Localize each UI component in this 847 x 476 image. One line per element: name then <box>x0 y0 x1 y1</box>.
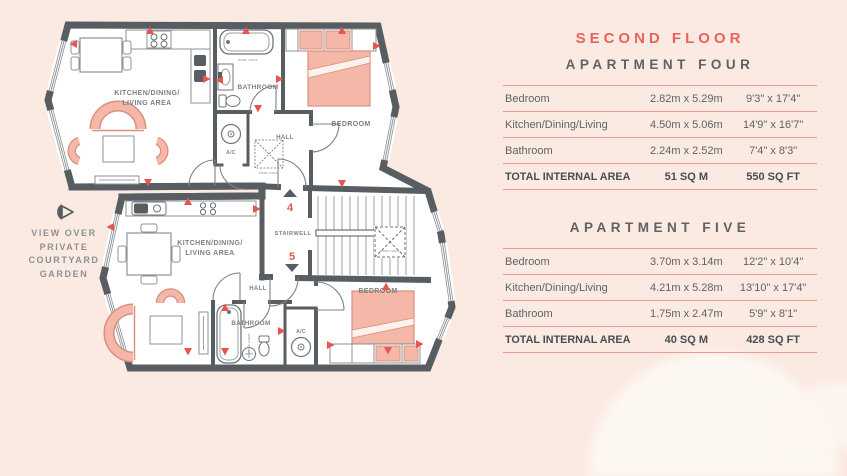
imperial-dims: 14'9" x 16'7" <box>731 119 815 131</box>
total-imperial: 428 SQ FT <box>731 334 815 346</box>
ac-fan-icon <box>292 338 311 357</box>
label-bedroom-five: BEDROOM <box>358 288 397 295</box>
total-metric: 51 SQ M <box>641 171 731 183</box>
table-row: Kitchen/Dining/Living 4.21m x 5.28m 13'1… <box>503 274 817 300</box>
apartment-four-title: APARTMENT FOUR <box>503 57 817 72</box>
table-row: Bedroom 2.82m x 5.29m 9'3" x 17'4" <box>503 85 817 111</box>
label-ac-five: A/C <box>296 329 306 335</box>
apartment-four-table: Bedroom 2.82m x 5.29m 9'3" x 17'4" Kitch… <box>503 85 817 190</box>
sink-icon <box>132 202 166 215</box>
metric-dims: 4.50m x 5.06m <box>641 119 731 131</box>
view-note-text: VIEW OVER PRIVATE COURTYARD GARDEN <box>8 227 120 281</box>
bed <box>352 291 414 344</box>
total-metric: 40 SQ M <box>641 334 731 346</box>
apartment-five-table: Bedroom 3.70m x 3.14m 12'2" x 10'4" Kitc… <box>503 248 817 353</box>
label-bathroom-five: BATHROOM <box>231 320 270 327</box>
roof-light-label: ROOF LIGHT <box>247 333 251 352</box>
toilet-icon <box>219 95 240 107</box>
coffee-table <box>103 136 134 162</box>
total-row: TOTAL INTERNAL AREA 40 SQ M 428 SQ FT <box>503 326 817 353</box>
dining-table <box>80 38 122 72</box>
label-ac-four: A/C <box>226 150 236 156</box>
stairwell-label: STAIRWELL <box>275 231 312 237</box>
dining-table <box>127 233 171 275</box>
label-bedroom-four: BEDROOM <box>331 121 370 128</box>
roof-light-label: ROOF LIGHT <box>238 58 257 62</box>
total-label: TOTAL INTERNAL AREA <box>505 334 641 346</box>
label-bathroom-four: BATHROOM <box>238 84 279 91</box>
room-name: Bathroom <box>505 145 641 157</box>
bed <box>308 51 370 106</box>
label-kitchen-five-line1: KITCHEN/DINING/ <box>177 240 243 247</box>
floor-title: SECOND FLOOR <box>503 30 817 47</box>
view-eye-icon <box>52 202 76 222</box>
room-name: Bedroom <box>505 256 641 268</box>
imperial-dims: 12'2" x 10'4" <box>731 256 815 268</box>
unit-four-number: 4 <box>287 202 294 214</box>
bathtub-icon <box>217 305 241 363</box>
total-row: TOTAL INTERNAL AREA 51 SQ M 550 SQ FT <box>503 163 817 190</box>
label-hall-four: HALL <box>276 135 294 141</box>
total-imperial: 550 SQ FT <box>731 171 815 183</box>
room-name: Kitchen/Dining/Living <box>505 119 641 131</box>
table-row: Bathroom 2.24m x 2.52m 7'4" x 8'3" <box>503 137 817 163</box>
wardrobe <box>286 29 376 51</box>
label-kitchen-four-line1: KITCHEN/DINING/ <box>114 90 180 97</box>
room-name: Kitchen/Dining/Living <box>505 282 641 294</box>
total-label: TOTAL INTERNAL AREA <box>505 171 641 183</box>
metric-dims: 2.24m x 2.52m <box>641 145 731 157</box>
table-row: Bathroom 1.75m x 2.47m 5'9" x 8'1" <box>503 300 817 326</box>
imperial-dims: 5'9" x 8'1" <box>731 308 815 320</box>
roof-light-label: ROOF LIGHT <box>259 171 278 175</box>
imperial-dims: 13'10" x 17'4" <box>731 282 815 294</box>
apartment-five-section: APARTMENT FIVE Bedroom 3.70m x 3.14m 12'… <box>503 220 817 353</box>
imperial-dims: 9'3" x 17'4" <box>731 93 815 105</box>
toilet-icon <box>259 336 269 356</box>
coffee-table <box>150 316 182 344</box>
spec-panel: SECOND FLOOR APARTMENT FOUR Bedroom 2.82… <box>503 0 817 353</box>
room-name: Bedroom <box>505 93 641 105</box>
metric-dims: 1.75m x 2.47m <box>641 308 731 320</box>
table-row: Bedroom 3.70m x 3.14m 12'2" x 10'4" <box>503 248 817 274</box>
label-kitchen-five-line2: LIVING AREA <box>185 250 234 257</box>
label-kitchen-four-line2: LIVING AREA <box>122 100 171 107</box>
imperial-dims: 7'4" x 8'3" <box>731 145 815 157</box>
metric-dims: 2.82m x 5.29m <box>641 93 731 105</box>
metric-dims: 4.21m x 5.28m <box>641 282 731 294</box>
unit-five-number: 5 <box>289 251 295 263</box>
basin-icon <box>218 64 233 90</box>
table-row: Kitchen/Dining/Living 4.50m x 5.06m 14'9… <box>503 111 817 137</box>
apartment-five-title: APARTMENT FIVE <box>503 220 817 235</box>
apartment-four-section: APARTMENT FOUR Bedroom 2.82m x 5.29m 9'3… <box>503 57 817 190</box>
wardrobe <box>330 344 420 363</box>
brochure-page: ROOF LIGHT 4 STAIRWELL 5 <box>0 0 847 414</box>
roof-light-label: ROOF LIGHT <box>380 249 399 253</box>
room-name: Bathroom <box>505 308 641 320</box>
metric-dims: 3.70m x 3.14m <box>641 256 731 268</box>
ac-fan-icon <box>222 125 241 144</box>
label-hall-five: HALL <box>249 286 267 292</box>
view-note: VIEW OVER PRIVATE COURTYARD GARDEN <box>8 202 120 281</box>
